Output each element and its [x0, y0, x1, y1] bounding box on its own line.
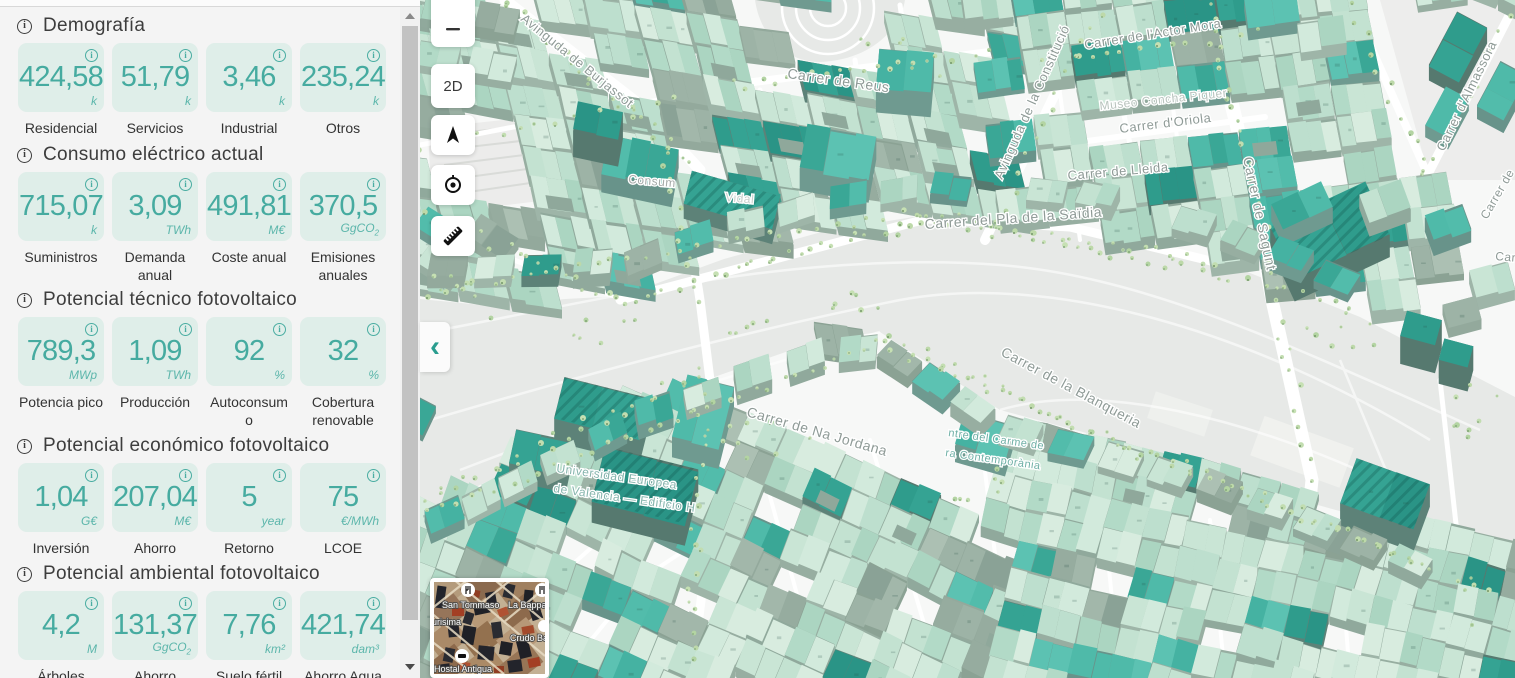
- svg-text:Hostal Antigua: Hostal Antigua: [434, 664, 492, 674]
- svg-text:Crudo Ba: Crudo Ba: [510, 633, 545, 643]
- svg-text:San Tommaso: San Tommaso: [442, 600, 499, 610]
- svg-text:urisima: urisima: [434, 617, 461, 627]
- svg-text:Vidal: Vidal: [725, 190, 755, 206]
- svg-text:La Bappa: La Bappa: [508, 600, 545, 610]
